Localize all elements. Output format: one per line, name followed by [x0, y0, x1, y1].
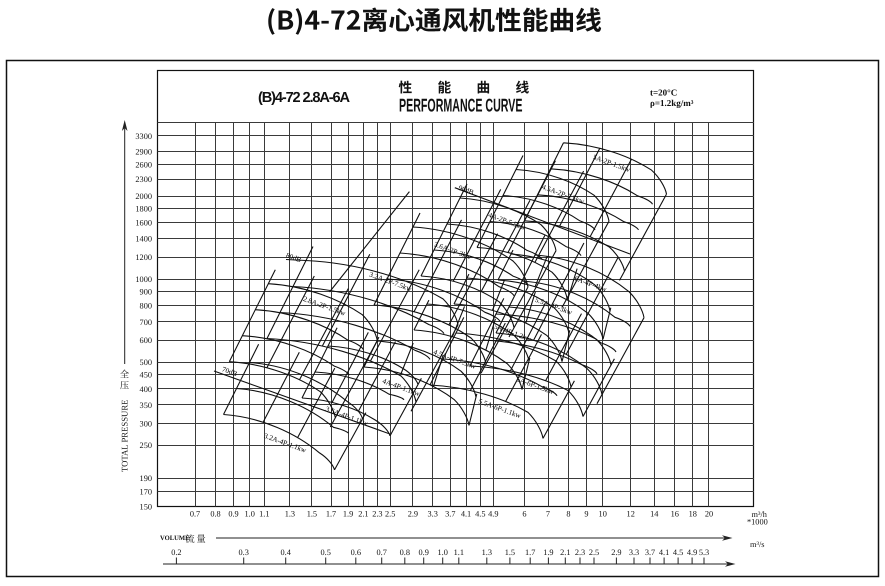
svg-text:800: 800	[140, 302, 152, 311]
svg-text:2.1: 2.1	[358, 510, 368, 519]
svg-text:0.3: 0.3	[239, 548, 249, 557]
svg-text:2000: 2000	[135, 192, 152, 201]
svg-text:4.9: 4.9	[488, 510, 498, 519]
svg-text:6: 6	[522, 510, 526, 519]
svg-text:4.1: 4.1	[461, 510, 471, 519]
svg-text:3.7: 3.7	[445, 510, 455, 519]
svg-text:20: 20	[705, 510, 713, 519]
svg-text:0.9: 0.9	[228, 510, 238, 519]
svg-text:2.9: 2.9	[408, 510, 418, 519]
svg-text:1400: 1400	[135, 235, 152, 244]
svg-text:1.5: 1.5	[307, 510, 317, 519]
svg-text:4.1: 4.1	[659, 548, 669, 557]
svg-text:600: 600	[140, 336, 152, 345]
svg-text:0.2: 0.2	[171, 548, 181, 557]
svg-text:500: 500	[140, 358, 152, 367]
svg-text:14: 14	[650, 510, 659, 519]
svg-text:VOLUME: VOLUME	[160, 535, 190, 542]
svg-text:1.3: 1.3	[285, 510, 295, 519]
svg-text:250: 250	[140, 441, 152, 450]
svg-text:9: 9	[584, 510, 588, 519]
svg-text:2300: 2300	[135, 175, 152, 184]
svg-text:0.8: 0.8	[400, 548, 410, 557]
svg-text:1.1: 1.1	[259, 510, 269, 519]
svg-text:350: 350	[140, 401, 152, 410]
svg-text:m³/s: m³/s	[750, 540, 764, 549]
svg-text:2.5: 2.5	[589, 548, 599, 557]
svg-text:4.9: 4.9	[687, 548, 697, 557]
svg-text:3.7: 3.7	[645, 548, 655, 557]
svg-text:1.5: 1.5	[505, 548, 515, 557]
svg-text:2.5: 2.5	[385, 510, 395, 519]
svg-text:4.5: 4.5	[673, 548, 683, 557]
svg-text:450: 450	[140, 371, 152, 380]
svg-text:2.1: 2.1	[560, 548, 570, 557]
svg-text:0.6: 0.6	[351, 548, 361, 557]
svg-text:2.9: 2.9	[611, 548, 621, 557]
svg-text:0.5: 0.5	[321, 548, 331, 557]
svg-text:0.4: 0.4	[281, 548, 292, 557]
svg-text:1.9: 1.9	[343, 510, 353, 519]
svg-text:2.3: 2.3	[372, 510, 382, 519]
svg-text:0.7: 0.7	[190, 510, 200, 519]
svg-text:4.5: 4.5	[475, 510, 485, 519]
svg-text:0.7: 0.7	[377, 548, 387, 557]
svg-text:1.7: 1.7	[326, 510, 336, 519]
svg-text:300: 300	[140, 419, 152, 428]
svg-text:1.7: 1.7	[525, 548, 535, 557]
svg-text:1600: 1600	[135, 219, 152, 228]
svg-text:t=20°C: t=20°C	[650, 88, 677, 98]
svg-text:0.9: 0.9	[419, 548, 429, 557]
svg-text:*1000: *1000	[747, 518, 768, 527]
svg-text:2.3: 2.3	[575, 548, 585, 557]
svg-text:1.0: 1.0	[245, 510, 255, 519]
svg-text:10: 10	[599, 510, 607, 519]
svg-text:1.0: 1.0	[438, 548, 448, 557]
svg-text:0.8: 0.8	[210, 510, 220, 519]
svg-text:18: 18	[689, 510, 697, 519]
svg-text:3.3: 3.3	[629, 548, 639, 557]
svg-text:3.3: 3.3	[428, 510, 438, 519]
svg-text:700: 700	[140, 318, 152, 327]
svg-text:400: 400	[140, 385, 152, 394]
svg-text:150: 150	[140, 502, 152, 511]
svg-text:170: 170	[140, 487, 152, 496]
svg-text:TOTAL PRESSURE: TOTAL PRESSURE	[120, 400, 130, 472]
svg-text:190: 190	[140, 474, 152, 483]
svg-text:12: 12	[627, 510, 635, 519]
svg-text:1000: 1000	[135, 275, 152, 284]
svg-text:3300: 3300	[135, 132, 152, 141]
svg-text:2600: 2600	[135, 161, 152, 170]
svg-text:1800: 1800	[135, 205, 152, 214]
svg-text:5.3: 5.3	[699, 548, 709, 557]
svg-text:16: 16	[671, 510, 679, 519]
svg-text:ρ=1.2kg/m³: ρ=1.2kg/m³	[650, 98, 694, 108]
svg-text:1200: 1200	[135, 253, 152, 262]
svg-text:1.9: 1.9	[543, 548, 553, 557]
svg-text:900: 900	[140, 288, 152, 297]
svg-text:PERFORMANCE CURVE: PERFORMANCE CURVE	[399, 95, 523, 116]
svg-text:1.1: 1.1	[454, 548, 464, 557]
svg-text:(B)4-72 2.8A-6A: (B)4-72 2.8A-6A	[258, 90, 350, 106]
svg-text:8: 8	[566, 510, 570, 519]
svg-text:7: 7	[546, 510, 550, 519]
svg-text:2900: 2900	[135, 147, 152, 156]
svg-text:1.3: 1.3	[482, 548, 492, 557]
